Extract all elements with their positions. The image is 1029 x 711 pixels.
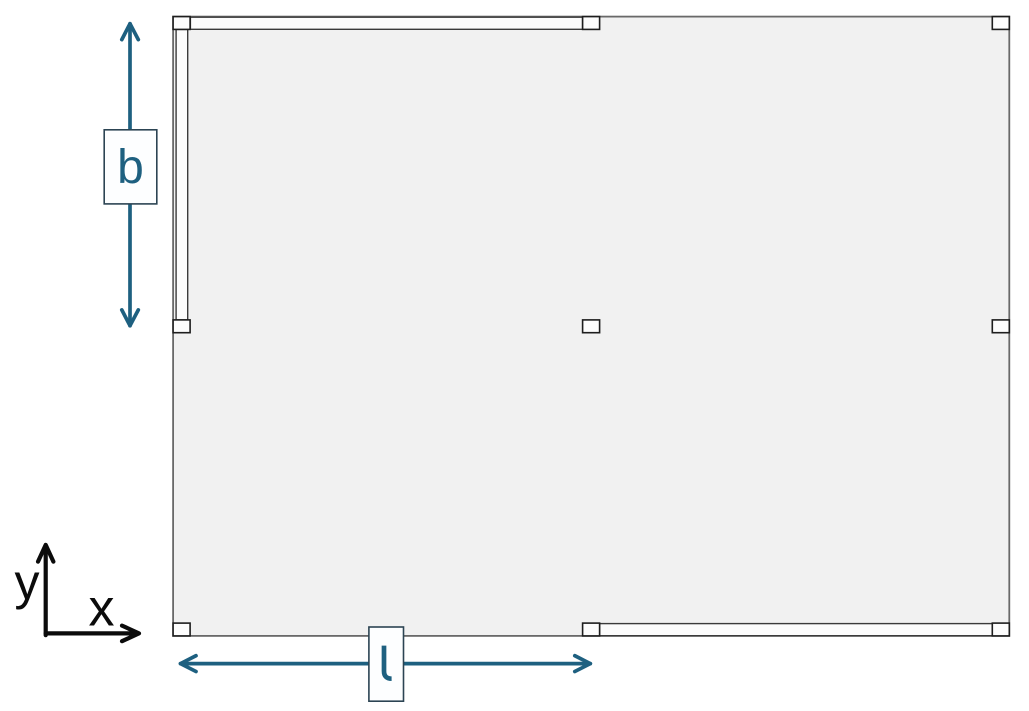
svg-text:x: x (89, 580, 115, 638)
svg-text:y: y (15, 554, 40, 610)
svg-text:b: b (117, 141, 144, 194)
